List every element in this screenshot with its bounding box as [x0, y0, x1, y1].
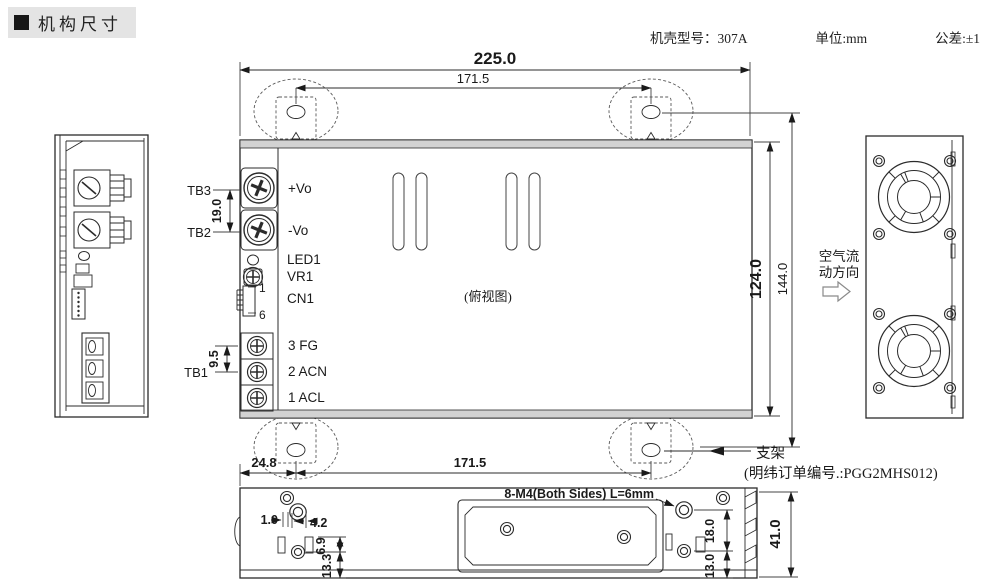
fan-screw-hole: [945, 156, 956, 167]
acn-label: 2 ACN: [288, 364, 327, 379]
dim-span-label: 171.5: [454, 455, 487, 470]
dim-d-label: 13.3: [320, 554, 334, 578]
bottom-edge-band: [240, 410, 752, 418]
airflow-line1: 空气流: [819, 249, 860, 264]
recess-outer: [458, 500, 663, 572]
dim-depth-label: 41.0: [767, 519, 784, 548]
tb3-screw-icon: [244, 173, 274, 203]
dim-edge-label: 24.8: [251, 455, 276, 470]
dimension-drawing: 225.0 171.5: [0, 0, 997, 588]
tb1-screw-acl-icon: [248, 389, 267, 408]
dim-c-label: 6.9: [314, 537, 328, 554]
screw-hole: [678, 545, 691, 558]
acl-label: 1 ACL: [288, 390, 325, 405]
left-edge-tabs: [60, 170, 66, 272]
screw-hole: [292, 546, 305, 559]
vr1-label: VR1: [287, 269, 313, 284]
led1-part: [248, 255, 259, 265]
dim-tb1-pitch-label: 9.5: [207, 350, 221, 367]
airflow-note: 空气流 动方向: [819, 249, 860, 301]
side-small-part-1: [76, 264, 89, 273]
tb2-screw-icon: [244, 215, 274, 245]
dim-width-225: [240, 62, 750, 136]
screw-hole: [501, 523, 514, 536]
airflow-line2: 动方向: [819, 265, 860, 280]
dim-hole-span-top-label: 171.5: [457, 71, 490, 86]
bracket-note: 支架 (明纬订单编号.:PGG2MHS012): [664, 445, 938, 482]
dim-a-label: 1.0: [261, 513, 278, 527]
fan-screw-hole: [945, 383, 956, 394]
fan-screw-hole: [874, 383, 885, 394]
left-side-view: [55, 135, 148, 417]
side-terminal-top: [74, 170, 110, 206]
fan-screw-hole: [945, 309, 956, 320]
fan-screw-hole: [874, 309, 885, 320]
screw-note-leader: [656, 499, 674, 506]
fan-grille-bottom-icon: [879, 316, 950, 387]
cn1-pin1-label: 1: [259, 281, 266, 295]
vo-plus-label: +Vo: [288, 181, 312, 196]
slot: [278, 537, 285, 553]
airflow-arrow-icon: [823, 282, 850, 301]
top-edge-band: [240, 140, 752, 148]
tb1-screw-acn-icon: [248, 363, 267, 382]
right-side-view: [866, 136, 963, 418]
screw-hole: [618, 531, 631, 544]
top-view-caption: (俯视图): [464, 289, 512, 304]
screw-hole: [676, 502, 692, 518]
fg-label: 3 FG: [288, 338, 318, 353]
side-terminal-bottom: [74, 212, 110, 248]
dim-tb-pitch-label: 19.0: [210, 199, 224, 223]
dim-bottom-spans: [240, 461, 651, 486]
led1-label: LED1: [287, 252, 321, 267]
side-led-part: [79, 252, 90, 261]
fan-screw-hole: [874, 229, 885, 240]
side-connector-pins: [77, 292, 79, 317]
dim-hole-span-top: [296, 88, 651, 104]
fan-screw-hole: [874, 156, 885, 167]
dim-body-height-label: 124.0: [748, 259, 765, 299]
dim-b-label: 4.2: [310, 516, 327, 530]
side-small-part-2: [74, 275, 92, 287]
screw-hole: [281, 492, 294, 505]
cn1-label: CN1: [287, 291, 314, 306]
hex-nut-top: [110, 175, 131, 201]
bottom-view-body: [240, 488, 757, 578]
tb3-label: TB3: [187, 183, 211, 198]
bracket-name: 支架: [756, 445, 785, 462]
tb1-label: TB1: [184, 365, 208, 380]
slot: [305, 537, 313, 553]
dim-e-label: 18.0: [703, 519, 717, 543]
dim-width-label: 225.0: [474, 49, 517, 68]
tb1-screw-fg-icon: [248, 337, 267, 356]
vent-slots: [393, 173, 540, 250]
left-edge-ear: [235, 517, 240, 546]
dim-f-label: 13.0: [703, 554, 717, 578]
hex-nut-bottom: [110, 217, 131, 243]
cn1-connector: [243, 286, 255, 316]
cn1-pin6-label: 6: [259, 308, 266, 322]
tb2-label: TB2: [187, 225, 211, 240]
fan-grille-top-icon: [879, 162, 950, 233]
screw-note-label: 8-M4(Both Sides) L=6mm: [504, 487, 654, 501]
bracket-leader-arrow-icon: [709, 447, 724, 456]
bracket-order-number: (明纬订单编号.:PGG2MHS012): [744, 465, 938, 482]
top-view: 225.0 171.5: [184, 49, 800, 479]
right-bracket-notches: [745, 491, 756, 563]
side-screw-top-slot: [82, 182, 96, 194]
mechanical-dimensions-page: 机构尺寸 机壳型号：307A 单位:mm 公差:±1: [0, 0, 997, 588]
slot: [666, 534, 672, 550]
side-screw-bottom-slot: [82, 224, 96, 236]
fan-screw-hole: [945, 229, 956, 240]
dim-total-height-label: 144.0: [775, 263, 790, 296]
side-input-slots: [86, 338, 103, 399]
vo-minus-label: -Vo: [288, 223, 308, 238]
screw-hole: [717, 492, 730, 505]
